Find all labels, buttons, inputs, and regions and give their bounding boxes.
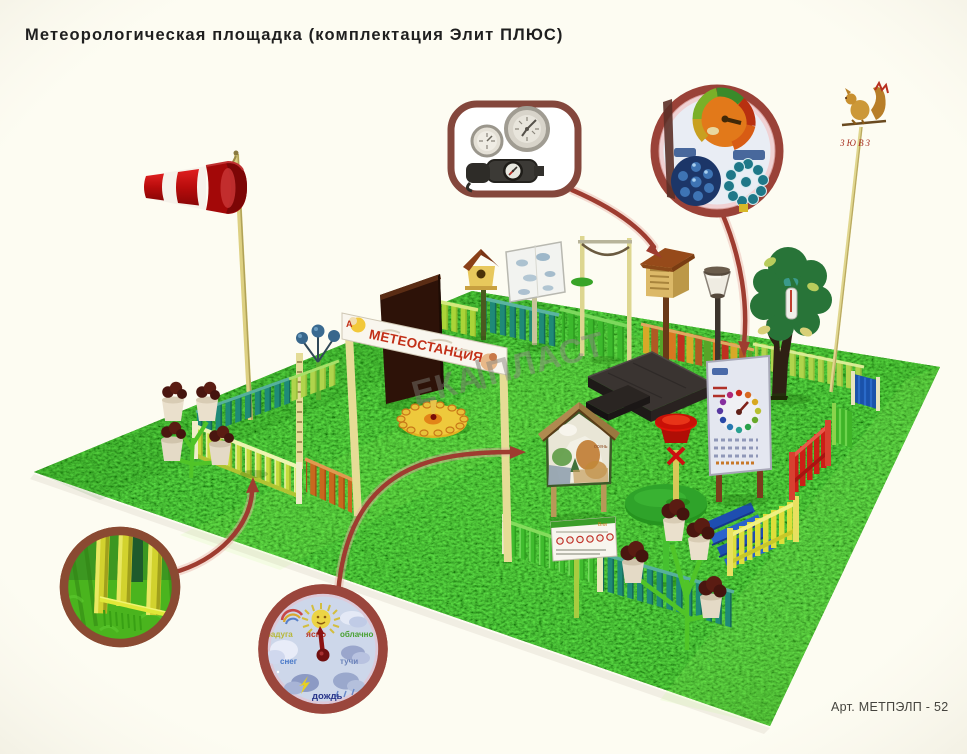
svg-text:дождь: дождь: [312, 691, 342, 702]
svg-text:А: А: [346, 319, 353, 329]
svg-text:облачно: облачно: [340, 630, 373, 639]
svg-text:тучи: тучи: [340, 657, 358, 666]
svg-text:осень: осень: [594, 444, 608, 450]
svg-text:Арт. МЕТПЭЛП - 52: Арт. МЕТПЭЛП - 52: [831, 700, 949, 714]
svg-text:Метеорологическая площадка (ко: Метеорологическая площадка (комплектация…: [25, 26, 564, 44]
svg-text:Вни: Вни: [598, 522, 607, 528]
svg-text:снег: снег: [280, 657, 298, 666]
svg-text:ЗЮВЗ: ЗЮВЗ: [840, 138, 872, 148]
